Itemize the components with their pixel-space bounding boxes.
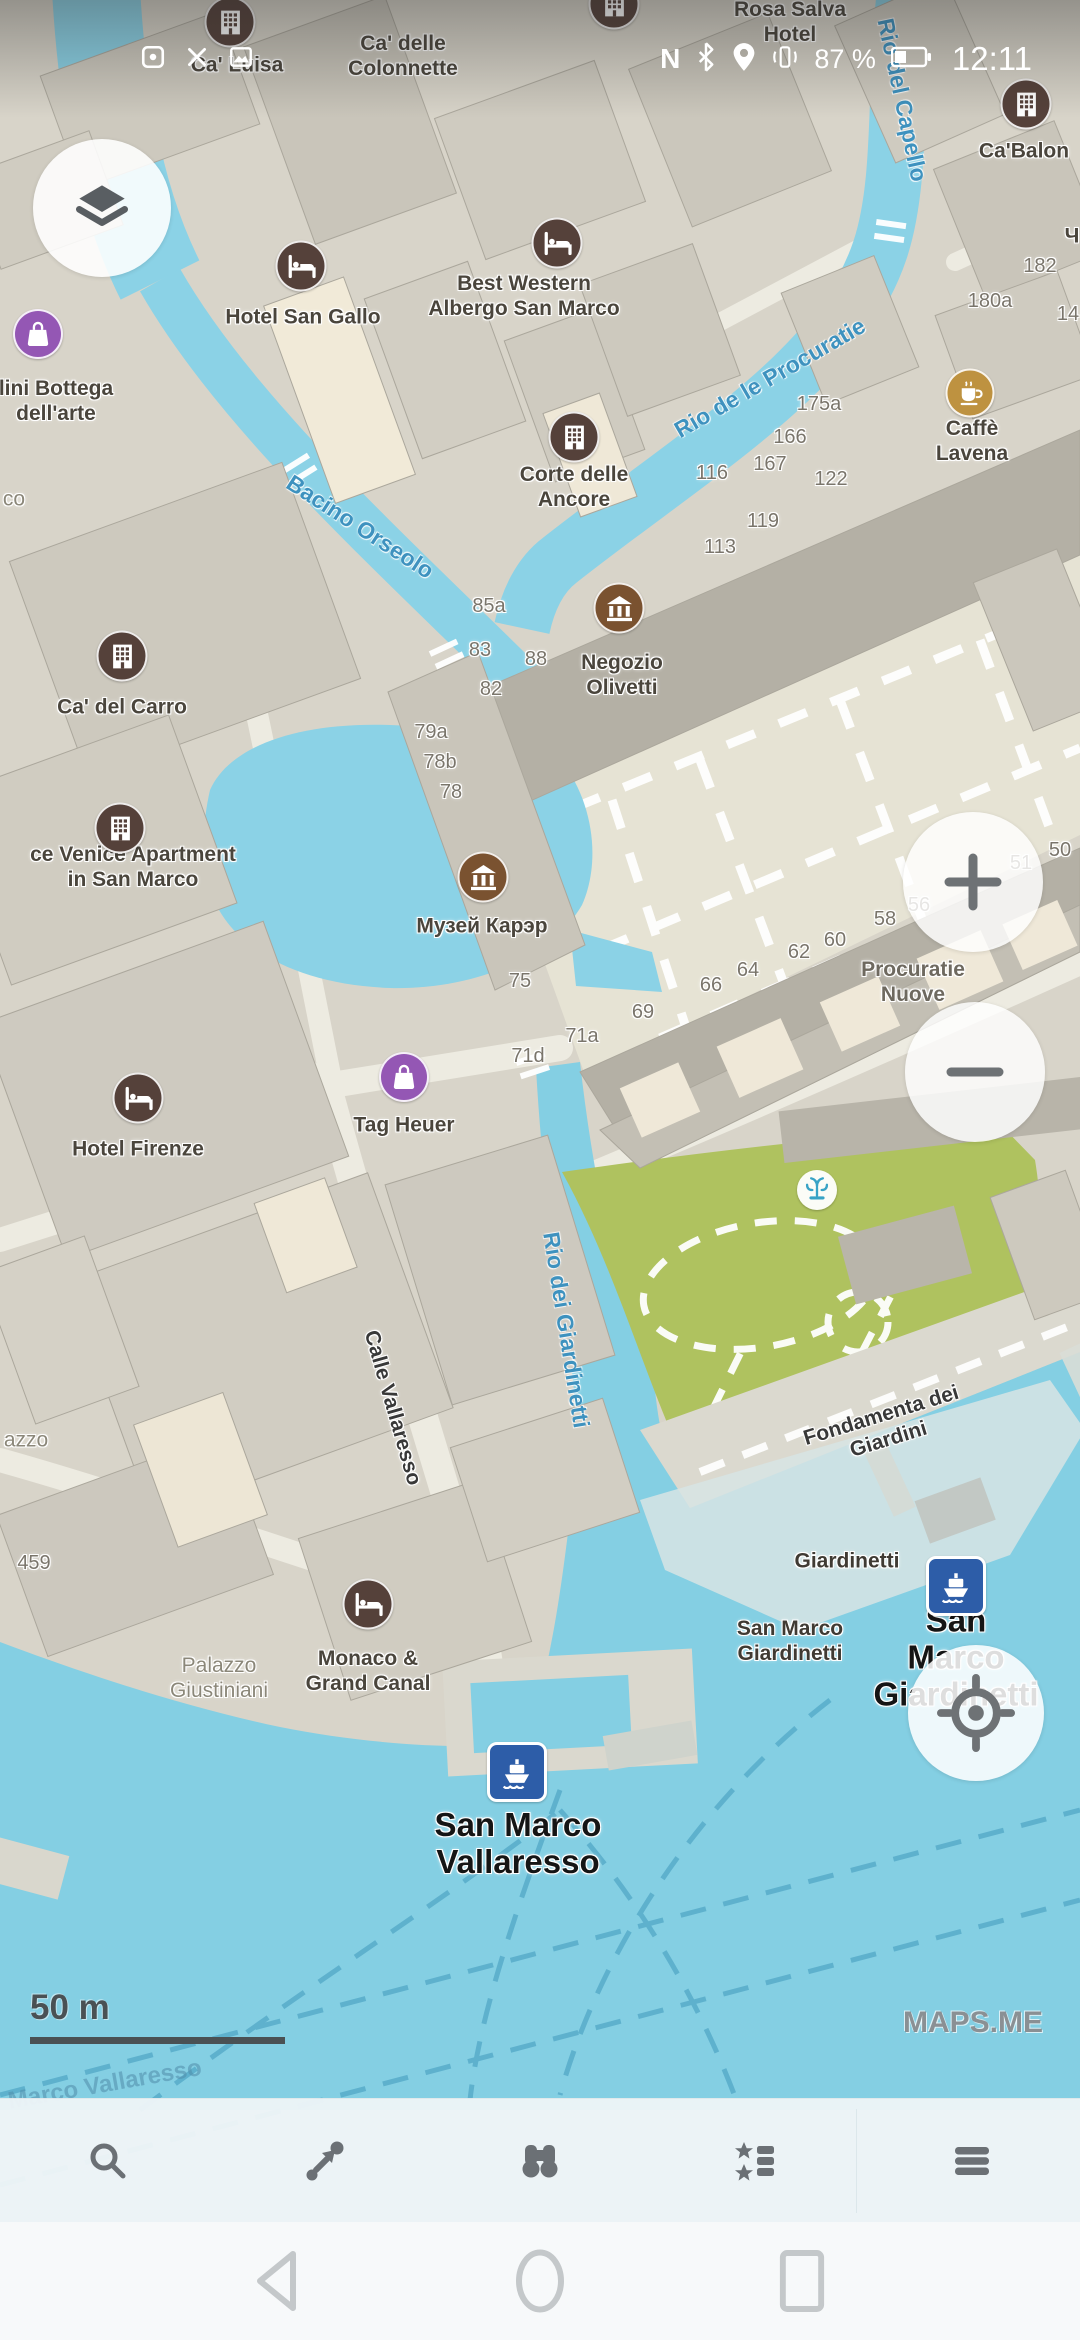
giardinetti-ferry-stop-ferry-icon[interactable] [926,1556,986,1616]
battery-percent: 87 % [814,44,876,75]
label-giardinetti[interactable]: Giardinetti [794,1550,899,1575]
my-location-button[interactable] [908,1645,1044,1781]
house-number: 167 [753,453,786,477]
tag-heuer-shop-icon[interactable] [379,1052,429,1102]
label-tag-heuer[interactable]: Tag Heuer [353,1114,454,1139]
menu-button[interactable] [864,2099,1080,2223]
venice-apartment-building-icon[interactable] [95,803,146,854]
house-number: 82 [480,678,502,702]
label-best-western[interactable]: Best Western Albergo San Marco [428,272,619,322]
house-number: 64 [737,959,759,983]
layers-button[interactable] [33,139,171,277]
ca-del-carro-building-icon[interactable] [97,631,148,682]
label-palazzo-giustiniani: Palazzo Giustiniani [170,1654,268,1704]
scale-bar: 50 m [30,1988,285,2044]
bottega-dellarte-shop-icon[interactable] [13,309,63,359]
bookmarks-icon [728,2133,784,2189]
notification-screenshot-icon [228,44,254,75]
label-cut-azzo: azzo [4,1429,48,1454]
house-number: 50 [1049,839,1071,863]
label-ca-balon[interactable]: Ca'Balon [979,140,1069,165]
back-icon [248,2248,308,2314]
label-san-marco-giardinetti-small[interactable]: San Marco Giardinetti [737,1617,843,1667]
label-venice-apartment[interactable]: ce Venice Apartment in San Marco [30,843,236,893]
hotel-firenze-bed-icon[interactable] [113,1073,164,1124]
maps-me-watermark: MAPS.ME [903,2006,1043,2040]
house-number: 88 [525,648,547,672]
clock: 12:11 [952,40,1032,78]
house-number: 166 [773,426,806,450]
house-number: 79a [414,721,447,745]
label-musei-karer[interactable]: Музей Карэр [416,915,547,940]
house-number: 75 [509,970,531,994]
discovery-button[interactable] [432,2099,648,2223]
house-number: 71d [511,1045,544,1069]
plus-icon [938,847,1008,917]
house-number: 175a [797,393,842,417]
label-bottega-dellarte[interactable]: lini Bottega dell'arte [0,377,113,427]
toolbar-divider [856,2109,857,2213]
label-cut-ch: Ч [1065,225,1080,250]
route-icon [298,2135,350,2187]
status-bar: N 87 % 12:11 [0,0,1080,118]
house-number: 78 [440,781,462,805]
mapsme-app: Ca' delle ColonnetteCa' LuisaRosa Salva … [0,0,1080,2340]
house-number: 119 [747,510,779,534]
negozio-olivetti-museum-icon[interactable] [594,583,645,634]
label-hotel-firenze[interactable]: Hotel Firenze [72,1138,204,1163]
recents-icon [774,2246,830,2316]
zoom-out-button[interactable] [905,1002,1045,1142]
vibrate-icon [771,43,799,76]
best-western-bed-icon[interactable] [532,218,583,269]
recents-button[interactable] [757,2236,847,2326]
label-ca-del-carro[interactable]: Ca' del Carro [57,696,187,721]
corte-delle-ancore-building-icon[interactable] [549,412,600,463]
musei-karer-museum-icon[interactable] [458,852,509,903]
house-number: 78b [423,751,456,775]
label-caffe-lavena[interactable]: Caffè Lavena [918,417,1026,467]
search-button[interactable] [0,2099,216,2223]
menu-icon [944,2133,1000,2189]
my-location-icon [937,1674,1015,1752]
house-number: 83 [469,639,491,663]
label-cut-co: co [3,488,25,513]
android-nav-bar [0,2222,1080,2340]
binoculars-icon [512,2133,568,2189]
label-procuratie-nuove: Procuratie Nuove [861,958,965,1008]
label-negozio-olivetti[interactable]: Negozio Olivetti [581,651,663,701]
notification-close-icon [184,44,210,75]
label-corte-delle-ancore[interactable]: Corte delle Ancore [520,463,629,513]
bookmarks-button[interactable] [648,2099,864,2223]
label-hotel-san-gallo[interactable]: Hotel San Gallo [225,306,380,331]
layers-icon [70,176,134,240]
bluetooth-icon [695,42,717,77]
house-number: 180a [968,290,1013,314]
bottom-toolbar [0,2098,1080,2223]
home-button[interactable] [495,2236,585,2326]
battery-icon [891,46,931,73]
location-icon [732,42,756,77]
house-number: 60 [824,929,846,953]
nfc-icon: N [660,43,680,75]
house-number: 122 [814,468,847,492]
house-number: 58 [874,908,896,932]
house-number: 69 [632,1001,654,1025]
house-number: 71a [565,1025,598,1049]
house-number: 459 [17,1552,50,1576]
route-button[interactable] [216,2099,432,2223]
house-number: 116 [696,462,728,486]
house-number: 113 [704,536,736,560]
minus-icon [940,1037,1010,1107]
house-number: 62 [788,941,810,965]
park-fountain-fountain-icon[interactable] [797,1170,837,1210]
label-monaco-grand-canal[interactable]: Monaco & Grand Canal [306,1647,431,1697]
vallaresso-ferry-stop-ferry-icon[interactable] [487,1742,547,1802]
label-stop-san-marco-vallaresso[interactable]: San Marco Vallaresso [435,1807,602,1881]
hotel-san-gallo-bed-icon[interactable] [276,241,327,292]
back-button[interactable] [233,2236,323,2326]
scale-label: 50 m [30,1988,285,2028]
search-icon [82,2135,134,2187]
notification-app-icon [140,44,166,75]
house-number: 182 [1023,255,1056,279]
house-number: 14 [1057,303,1079,327]
house-number: 66 [700,974,722,998]
home-icon [510,2246,570,2316]
monaco-grand-canal-bed-icon[interactable] [343,1579,394,1630]
house-number: 85a [472,595,505,619]
zoom-in-button[interactable] [903,812,1043,952]
caffe-lavena-cafe-icon[interactable] [946,369,995,418]
scale-line [30,2037,285,2044]
